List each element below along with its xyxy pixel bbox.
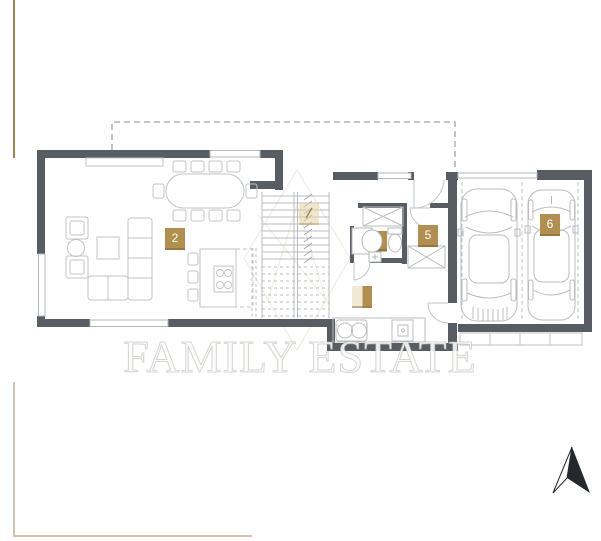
floor-plan-page: 2 5 6 FAMILY ESTATE <box>0 0 601 541</box>
wall-shelf <box>86 158 163 166</box>
room-label-garage: 6 <box>540 214 560 236</box>
room-label-storage: 5 <box>418 225 438 247</box>
car-left <box>458 189 520 321</box>
kitchen-island <box>188 249 253 307</box>
faded-label-mark <box>299 203 319 223</box>
sofa-set <box>66 217 152 300</box>
room-label-hall-faded <box>352 286 372 308</box>
floor-plan-drawing <box>0 0 601 541</box>
bathroom-fixtures <box>352 228 402 262</box>
watermark-text: FAMILY ESTATE <box>10 330 590 383</box>
car-right <box>525 190 578 320</box>
room-label-stairs-faded <box>299 203 319 225</box>
room-label-living: 2 <box>165 228 185 250</box>
north-arrow-icon <box>553 447 590 493</box>
car-grille <box>473 307 507 321</box>
dining-table <box>153 161 257 221</box>
